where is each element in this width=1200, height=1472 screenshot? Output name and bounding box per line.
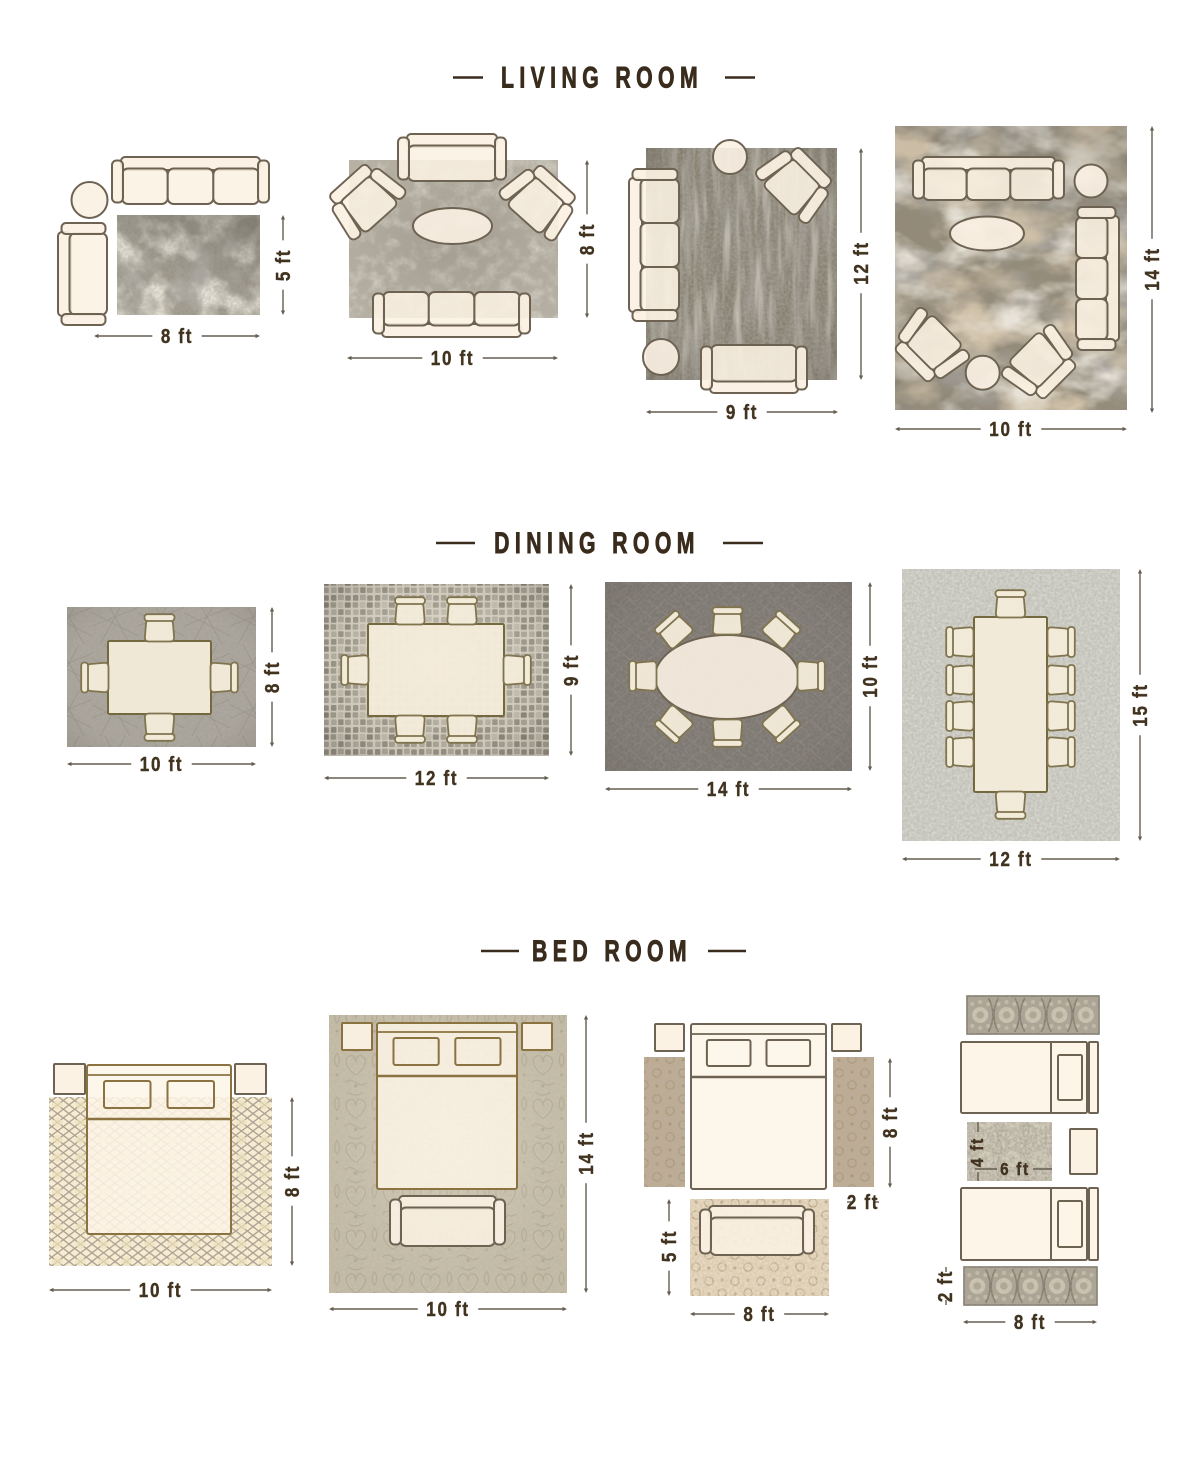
svg-text:10 ft: 10 ft (140, 753, 183, 776)
svg-text:14 ft: 14 ft (707, 778, 750, 801)
svg-text:LIVING ROOM: LIVING ROOM (501, 62, 703, 94)
svg-text:8 ft: 8 ft (261, 661, 284, 693)
svg-text:8 ft: 8 ft (281, 1165, 304, 1197)
svg-text:14 ft: 14 ft (1141, 247, 1164, 290)
svg-text:10 ft: 10 ft (139, 1279, 182, 1302)
svg-text:5 ft: 5 ft (658, 1230, 681, 1262)
svg-text:2 ft: 2 ft (934, 1270, 957, 1302)
svg-text:10 ft: 10 ft (431, 347, 474, 370)
svg-text:12 ft: 12 ft (989, 848, 1032, 871)
svg-text:8 ft: 8 ft (879, 1106, 902, 1138)
svg-text:4 ft: 4 ft (967, 1137, 987, 1167)
svg-text:14 ft: 14 ft (575, 1131, 598, 1174)
svg-text:12 ft: 12 ft (850, 241, 873, 284)
svg-text:9 ft: 9 ft (726, 401, 758, 424)
svg-text:6 ft: 6 ft (1000, 1159, 1030, 1179)
svg-text:5 ft: 5 ft (272, 249, 295, 281)
svg-text:BED ROOM: BED ROOM (532, 936, 692, 968)
svg-text:10 ft: 10 ft (426, 1298, 469, 1321)
svg-text:12 ft: 12 ft (415, 767, 458, 790)
svg-text:8 ft: 8 ft (743, 1303, 775, 1326)
svg-text:10 ft: 10 ft (989, 418, 1032, 441)
svg-text:15 ft: 15 ft (1129, 683, 1152, 726)
svg-text:8 ft: 8 ft (1014, 1311, 1046, 1334)
svg-text:8 ft: 8 ft (576, 223, 599, 255)
svg-text:10 ft: 10 ft (859, 654, 882, 697)
svg-text:2 ft: 2 ft (847, 1191, 879, 1214)
svg-text:DINING ROOM: DINING ROOM (494, 528, 700, 560)
svg-text:8 ft: 8 ft (161, 325, 193, 348)
svg-text:9 ft: 9 ft (560, 654, 583, 686)
